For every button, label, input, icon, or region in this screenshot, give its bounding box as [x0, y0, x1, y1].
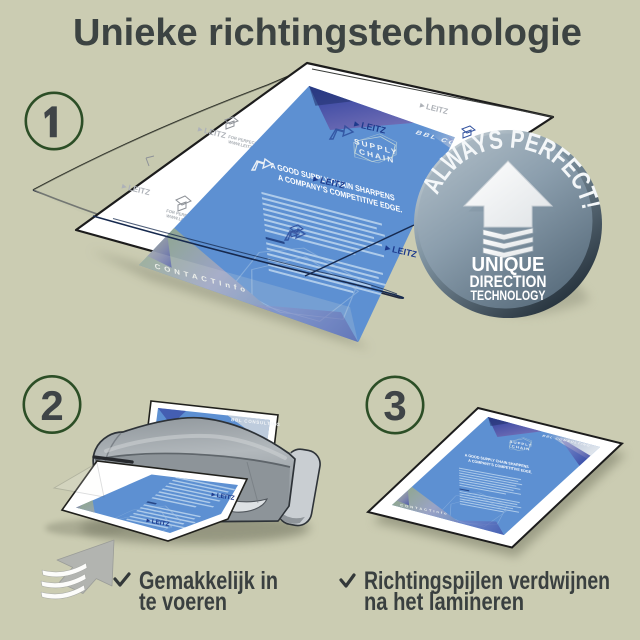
svg-text:2: 2 — [40, 382, 63, 429]
svg-text:te voeren: te voeren — [139, 588, 227, 616]
svg-text:TECHNOLOGY: TECHNOLOGY — [471, 288, 546, 303]
svg-text:na het lamineren: na het lamineren — [364, 588, 524, 616]
svg-text:3: 3 — [383, 382, 406, 429]
svg-text:Unieke richtingstechnologie: Unieke richtingstechnologie — [73, 12, 582, 54]
